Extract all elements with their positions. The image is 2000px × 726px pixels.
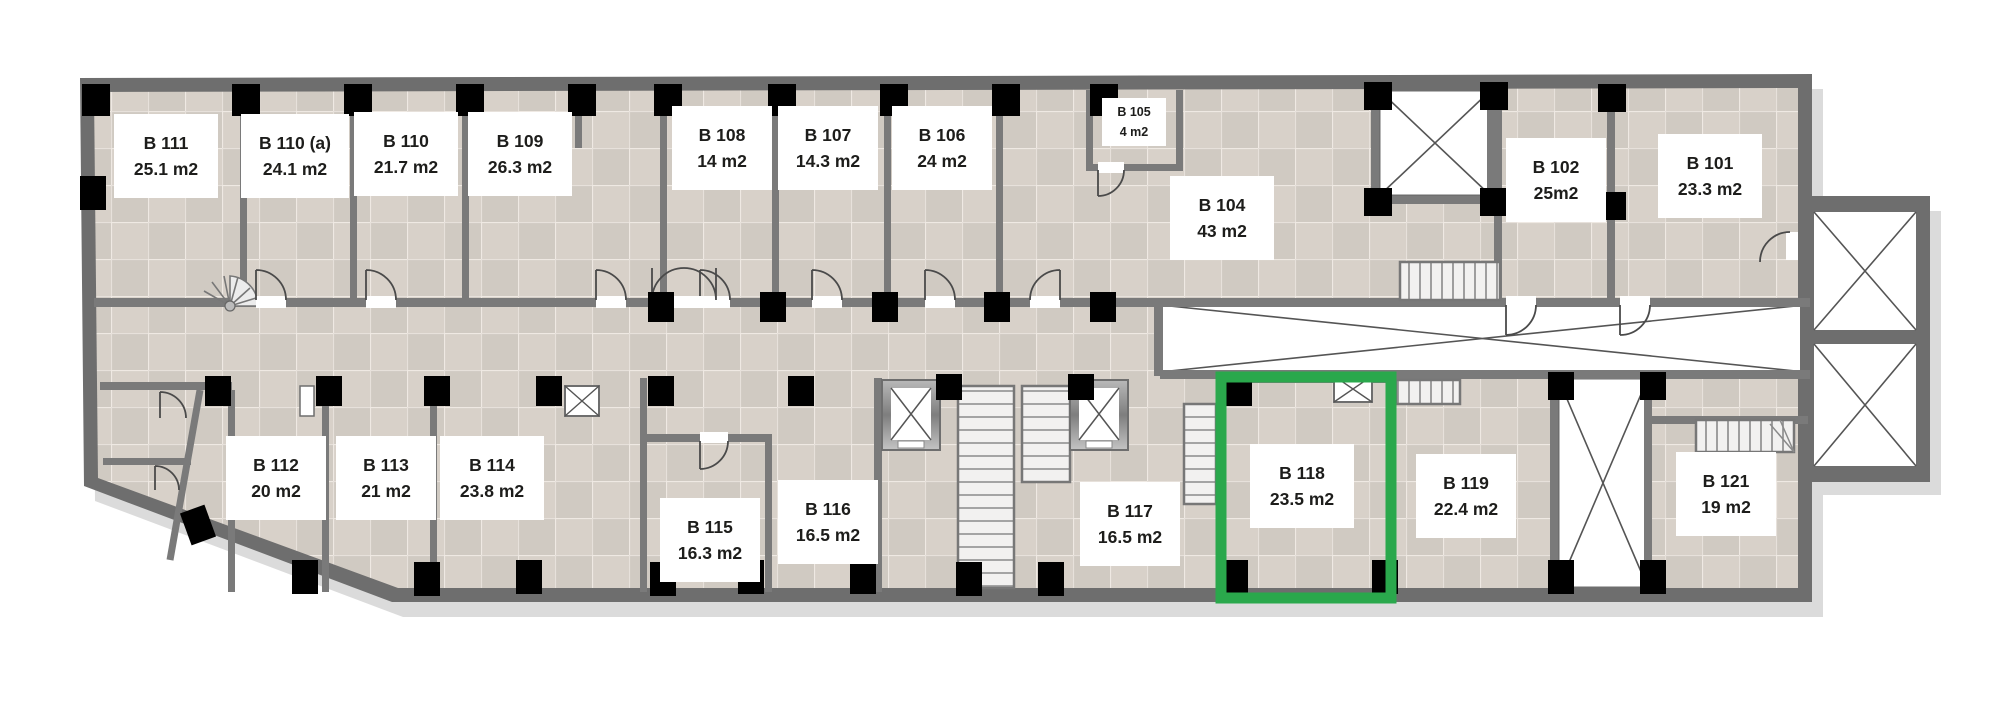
room-label-background: [892, 106, 992, 190]
room-name-text: B 118: [1279, 463, 1325, 483]
room-label-b110[interactable]: B 11021.7 m2: [354, 112, 458, 196]
room-label-b113[interactable]: B 11321 m2: [336, 436, 436, 520]
room-name-text: B 111: [144, 133, 189, 153]
room-area-text: 19 m2: [1701, 497, 1751, 517]
room-label-b104[interactable]: B 10443 m2: [1170, 176, 1274, 260]
room-area-text: 24.1 m2: [263, 159, 327, 179]
room-name-text: B 105: [1117, 105, 1150, 119]
room-area-text: 21 m2: [361, 481, 411, 501]
room-area-text: 24 m2: [917, 151, 967, 171]
room-name-text: B 101: [1687, 153, 1734, 173]
room-name-text: B 114: [469, 455, 515, 475]
room-label-background: [778, 480, 878, 564]
room-area-text: 25.1 m2: [134, 159, 198, 179]
room-label-b102[interactable]: B 10225m2: [1506, 138, 1606, 222]
room-label-background: [241, 114, 349, 198]
room-label-background: [1676, 452, 1776, 536]
room-area-text: 14.3 m2: [796, 151, 860, 171]
room-label-b121[interactable]: B 12119 m2: [1676, 452, 1776, 536]
room-label-b107[interactable]: B 10714.3 m2: [778, 106, 878, 190]
room-label-b114[interactable]: B 11423.8 m2: [440, 436, 544, 520]
room-name-text: B 121: [1703, 471, 1750, 491]
floor-plan: B 11125.1 m2B 110 (a)24.1 m2B 11021.7 m2…: [0, 0, 2000, 726]
room-label-b109[interactable]: B 10926.3 m2: [468, 112, 572, 196]
room-label-b117[interactable]: B 11716.5 m2: [1080, 482, 1180, 566]
room-area-text: 26.3 m2: [488, 157, 552, 177]
room-name-text: B 104: [1199, 195, 1246, 215]
annex-shafts: [1800, 196, 1930, 482]
room-label-background: [1506, 138, 1606, 222]
void-shaft-icon: [1558, 378, 1648, 588]
room-label-b106[interactable]: B 10624 m2: [892, 106, 992, 190]
room-label-b111[interactable]: B 11125.1 m2: [114, 114, 218, 198]
room-label-background: [468, 112, 572, 196]
room-label-background: [1250, 444, 1354, 528]
room-label-background: [114, 114, 218, 198]
room-name-text: B 107: [805, 125, 852, 145]
light-well-icon: [1160, 305, 1805, 372]
room-area-text: 16.3 m2: [678, 543, 742, 563]
room-label-b115[interactable]: B 11516.3 m2: [660, 498, 760, 582]
room-name-text: B 109: [497, 131, 544, 151]
room-label-background: [660, 498, 760, 582]
room-name-text: B 115: [687, 517, 733, 537]
room-name-text: B 117: [1107, 501, 1153, 521]
room-name-text: B 112: [253, 455, 299, 475]
room-label-b112[interactable]: B 11220 m2: [226, 436, 326, 520]
room-label-background: [226, 436, 326, 520]
room-label-background: [778, 106, 878, 190]
room-label-b101[interactable]: B 10123.3 m2: [1658, 134, 1762, 218]
floor-plan-canvas: B 11125.1 m2B 110 (a)24.1 m2B 11021.7 m2…: [0, 0, 2000, 726]
room-label-b116[interactable]: B 11616.5 m2: [778, 480, 878, 564]
room-name-text: B 106: [919, 125, 966, 145]
room-label-background: [1080, 482, 1180, 566]
room-label-background: [1416, 454, 1516, 538]
room-name-text: B 110: [383, 131, 429, 151]
room-area-text: 20 m2: [251, 481, 301, 501]
room-area-text: 16.5 m2: [1098, 527, 1162, 547]
room-area-text: 4 m2: [1120, 125, 1149, 139]
room-label-background: [336, 436, 436, 520]
elevator-shaft-icon: [882, 380, 940, 450]
room-area-text: 43 m2: [1197, 221, 1247, 241]
room-label-b119[interactable]: B 11922.4 m2: [1416, 454, 1516, 538]
room-area-text: 25m2: [1534, 183, 1579, 203]
room-area-text: 16.5 m2: [796, 525, 860, 545]
room-area-text: 23.3 m2: [1678, 179, 1742, 199]
room-area-text: 22.4 m2: [1434, 499, 1498, 519]
room-name-text: B 116: [805, 499, 851, 519]
room-label-background: [440, 436, 544, 520]
room-name-text: B 119: [1443, 473, 1489, 493]
room-name-text: B 108: [699, 125, 746, 145]
room-label-b110a[interactable]: B 110 (a)24.1 m2: [241, 114, 349, 198]
room-label-b108[interactable]: B 10814 m2: [672, 106, 772, 190]
room-area-text: 23.5 m2: [1270, 489, 1334, 509]
ventilation-shaft-icon: [1379, 90, 1491, 196]
room-label-background: [1658, 134, 1762, 218]
room-label-b118[interactable]: B 11823.5 m2: [1250, 444, 1354, 528]
room-area-text: 21.7 m2: [374, 157, 438, 177]
room-label-background: [1170, 176, 1274, 260]
room-name-text: B 102: [1533, 157, 1580, 177]
room-label-b105[interactable]: B 1054 m2: [1102, 98, 1166, 146]
room-area-text: 23.8 m2: [460, 481, 524, 501]
room-area-text: 14 m2: [697, 151, 747, 171]
room-name-text: B 110 (a): [259, 133, 331, 153]
room-label-background: [354, 112, 458, 196]
room-name-text: B 113: [363, 455, 409, 475]
room-label-background: [672, 106, 772, 190]
